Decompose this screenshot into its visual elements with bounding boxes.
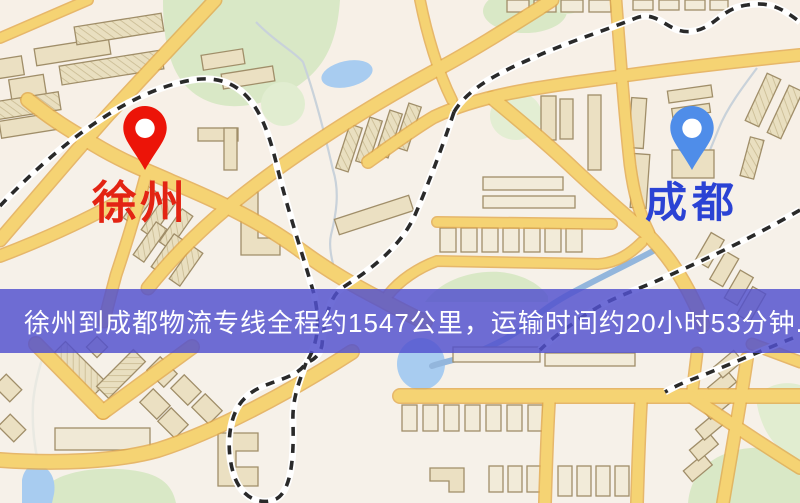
destination-label: 成都 bbox=[645, 183, 739, 225]
origin-pin-icon bbox=[122, 106, 168, 170]
map-screenshot: 徐州到成都物流专线全程约1547公里，运输时间约20小时53分钟. 徐州 成都 bbox=[0, 0, 800, 503]
origin-label: 徐州 bbox=[92, 181, 188, 226]
route-banner: 徐州到成都物流专线全程约1547公里，运输时间约20小时53分钟. bbox=[0, 289, 800, 353]
destination-pin-icon bbox=[669, 106, 715, 170]
route-banner-text: 徐州到成都物流专线全程约1547公里，运输时间约20小时53分钟. bbox=[24, 303, 800, 340]
map-canvas bbox=[0, 0, 800, 503]
